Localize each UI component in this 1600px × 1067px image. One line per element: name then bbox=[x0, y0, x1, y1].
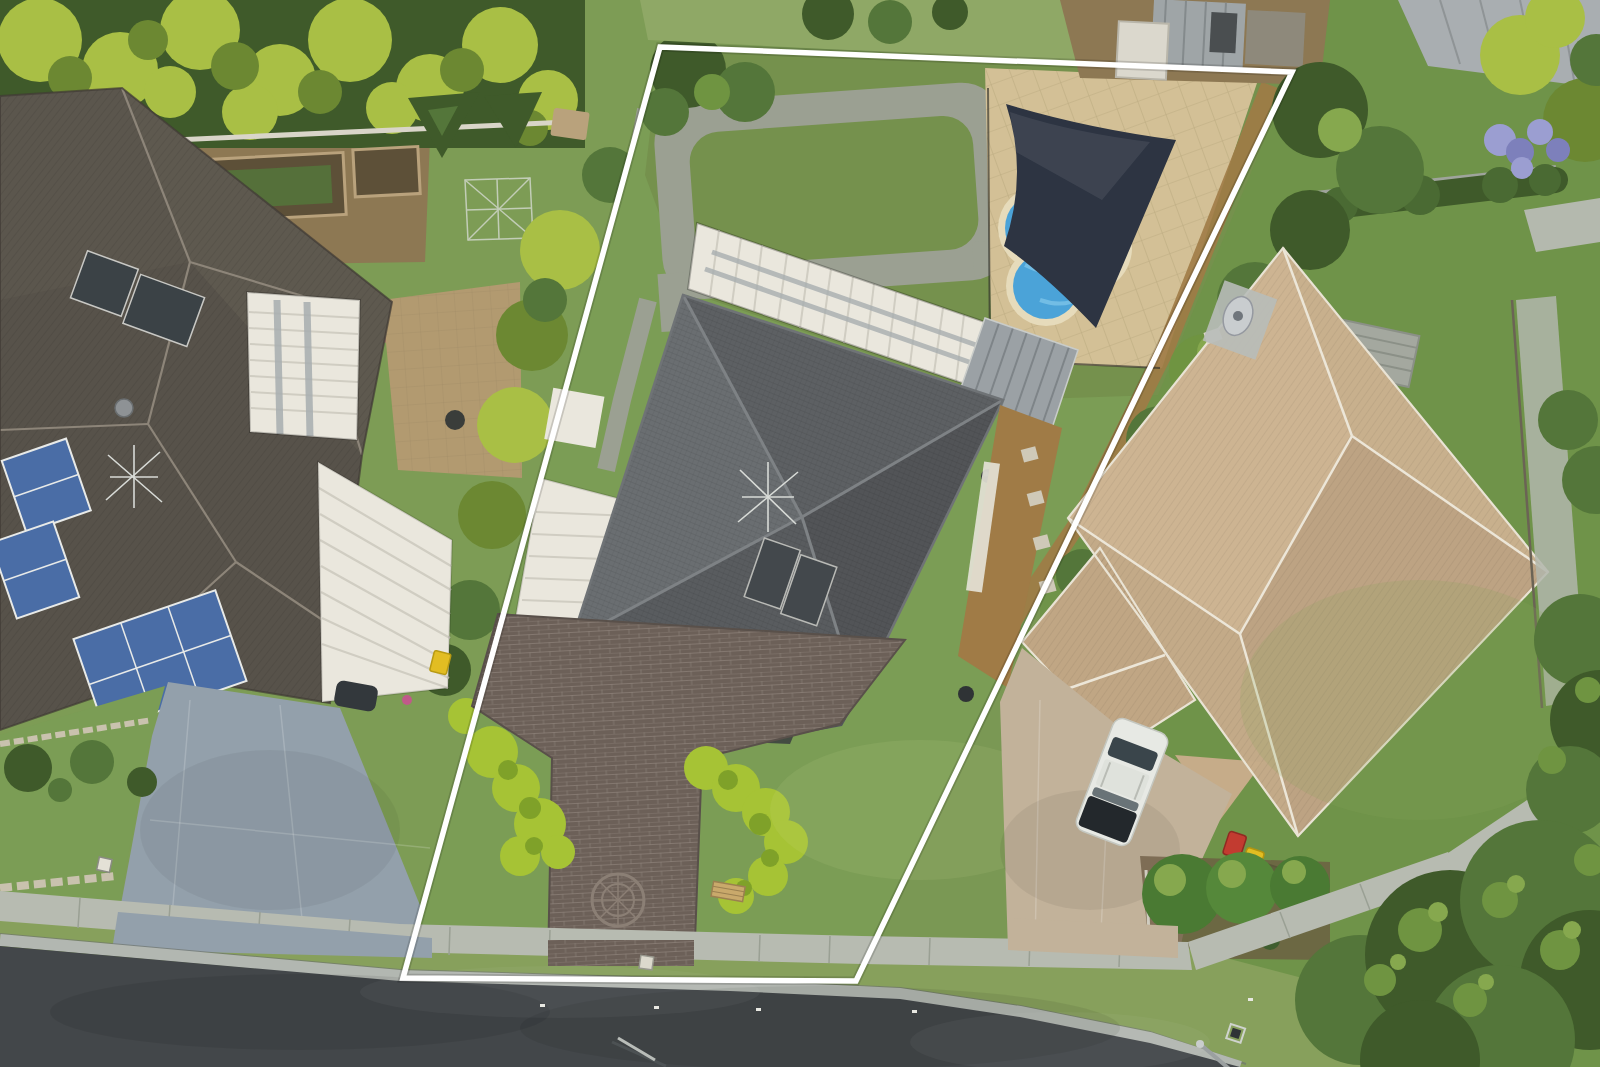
garden-steps-small bbox=[550, 108, 590, 141]
left-pergola bbox=[247, 292, 360, 440]
mailbox bbox=[97, 857, 112, 872]
skylight-strip bbox=[277, 300, 280, 434]
garden-pot bbox=[958, 686, 974, 702]
pink-object bbox=[402, 695, 412, 705]
roof-vent bbox=[115, 399, 133, 417]
aerial-photo bbox=[0, 0, 1600, 1067]
bbq bbox=[445, 410, 465, 430]
aerial-photo-stage bbox=[0, 0, 1600, 1067]
driveway-medallion bbox=[592, 874, 644, 926]
verge-mailbox bbox=[639, 955, 654, 970]
skylight-strip bbox=[307, 302, 310, 436]
